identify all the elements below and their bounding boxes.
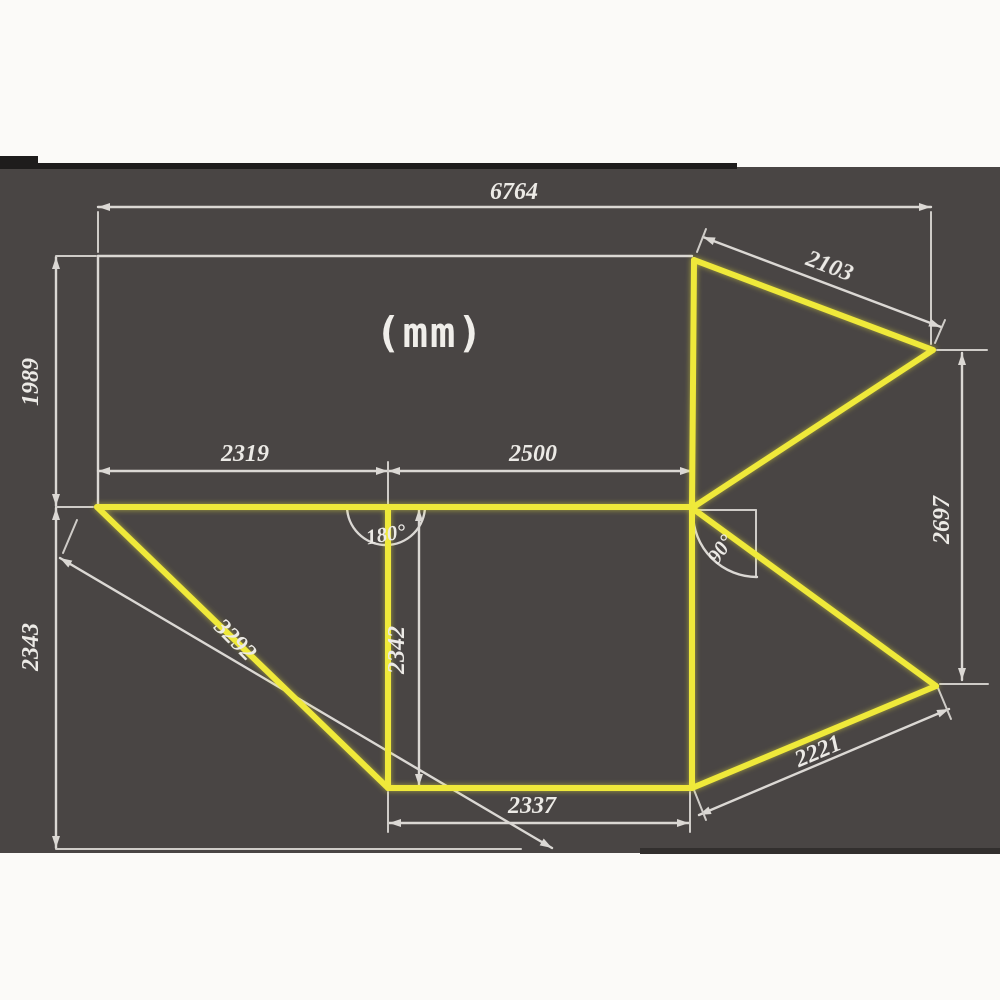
panel-bottom-right-strip bbox=[640, 848, 1000, 854]
fabric-edge-upper-vertical bbox=[692, 260, 694, 507]
dim-label-left-lower: 2343 bbox=[18, 623, 44, 672]
dim-label-right-height: 2697 bbox=[929, 495, 955, 545]
dim-label-top-width: 6764 bbox=[490, 179, 538, 205]
dim-label-bottom-width: 2337 bbox=[507, 793, 557, 819]
dim-label-left-panel-width: 2319 bbox=[220, 441, 269, 467]
awning-dimension-diagram: (mm) 6764 2103 1989 2319 2500 2342 2343 … bbox=[0, 0, 1000, 1000]
panel-top-dark-strip bbox=[0, 163, 737, 169]
dim-label-mid-panel-width: 2500 bbox=[508, 441, 557, 467]
diagram-canvas: (mm) 6764 2103 1989 2319 2500 2342 2343 … bbox=[0, 0, 1000, 1000]
panel-top-right-notch bbox=[737, 163, 1000, 167]
dim-label-mid-panel-height: 2342 bbox=[384, 626, 410, 675]
panel-top-left-nub bbox=[0, 156, 38, 163]
unit-label: (mm) bbox=[375, 308, 484, 357]
dim-label-left-upper: 1989 bbox=[18, 358, 44, 406]
